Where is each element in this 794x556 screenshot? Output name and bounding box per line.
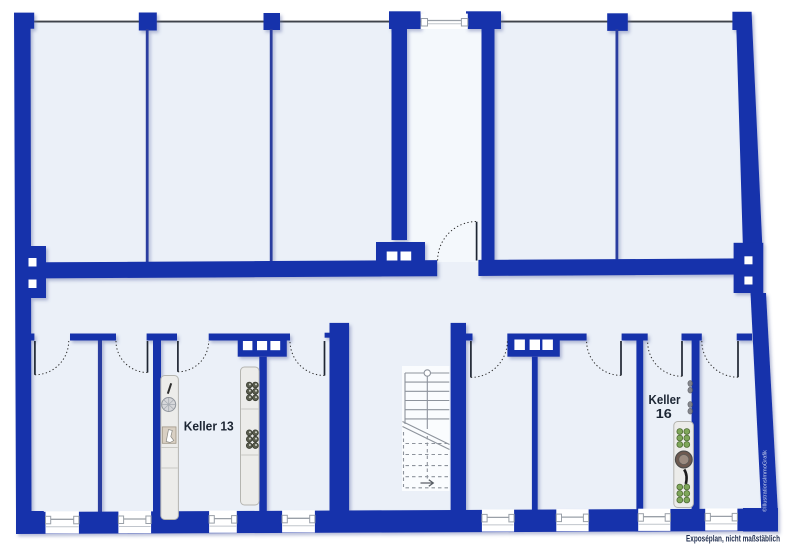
svg-text:Exposéplan, nicht maßstäblich: Exposéplan, nicht maßstäblich xyxy=(686,534,780,545)
svg-text:16: 16 xyxy=(656,407,672,421)
svg-text:Keller 13: Keller 13 xyxy=(184,420,234,434)
svg-text:Keller: Keller xyxy=(649,393,681,407)
svg-text:©IllustrationsImmoGrafik: ©IllustrationsImmoGrafik xyxy=(762,450,769,512)
